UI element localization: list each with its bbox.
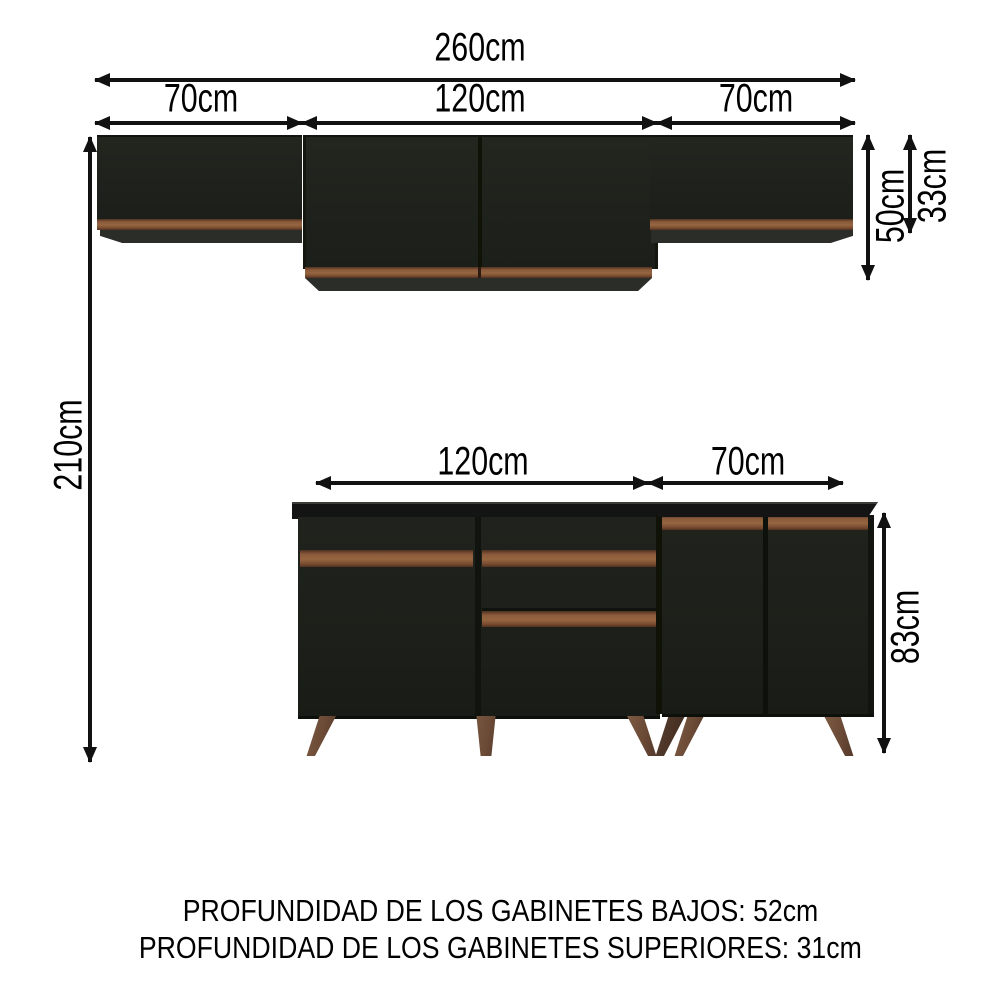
upper-center-width-label: 120cm (434, 77, 525, 122)
kitchen-dimension-diagram: 260cm 70cm 120cm 70cm 210cm 50cm 33cm 12… (0, 0, 1000, 1000)
footer-depth-upper-text: PROFUNDIDAD DE LOS GABINETES SUPERIORES:… (139, 930, 862, 966)
upper-center-width-arrow (302, 121, 657, 125)
footer-depth-upper: PROFUNDIDAD DE LOS GABINETES SUPERIORES:… (0, 930, 1000, 966)
leg-left-1 (306, 716, 336, 756)
upper-center-cabinet-base (305, 278, 652, 291)
upper-right-width-arrow (657, 121, 855, 125)
lower-left-width-label: 120cm (437, 440, 528, 485)
lower-left-cabinet-divider (475, 517, 481, 716)
lower-right-cabinet-right-side (868, 515, 874, 714)
leg-left-3 (627, 716, 657, 756)
upper-center-cabinet-doors (303, 135, 658, 269)
upper-right-cabinet-base (651, 230, 853, 243)
upper-side-height-label: 33cm (911, 149, 956, 223)
lower-left-width-arrow (316, 481, 648, 485)
upper-right-cabinet-trim (650, 219, 853, 230)
lower-height-label: 83cm (884, 590, 929, 664)
leg-right-2 (824, 716, 854, 756)
upper-left-width-arrow (95, 121, 302, 125)
leg-left-2 (471, 716, 501, 756)
footer-depth-lower-text: PROFUNDIDAD DE LOS GABINETES BAJOS: 52cm (182, 893, 818, 929)
lower-right-cabinet-divider (763, 515, 768, 714)
upper-right-width-label: 70cm (719, 77, 793, 122)
lower-right-cabinet-body (662, 515, 874, 717)
upper-center-cabinet-door-divider (478, 137, 482, 269)
total-width-label: 260cm (434, 26, 525, 71)
lower-left-drawer1-handle-trim (482, 550, 658, 567)
lower-right-countertop (658, 502, 878, 517)
total-height-label: 210cm (47, 399, 92, 490)
upper-right-cabinet-door (650, 135, 853, 221)
lower-right-door2-handle-trim (768, 515, 868, 530)
upper-left-cabinet-trim (97, 219, 302, 230)
upper-left-cabinet-base (100, 230, 302, 243)
upper-left-cabinet-door (97, 135, 302, 221)
lower-right-width-label: 70cm (711, 440, 785, 485)
lower-left-drawer2-handle-trim (482, 611, 658, 627)
lower-right-door1-handle-trim (662, 515, 763, 530)
upper-center-cabinet-trim-divider (478, 267, 481, 278)
lower-right-width-arrow (648, 481, 843, 485)
upper-left-width-label: 70cm (164, 77, 238, 122)
footer-depth-lower: PROFUNDIDAD DE LOS GABINETES BAJOS: 52cm (0, 893, 1000, 929)
lower-left-door-handle-trim (300, 550, 473, 567)
lower-left-cabinet-body (298, 517, 660, 719)
